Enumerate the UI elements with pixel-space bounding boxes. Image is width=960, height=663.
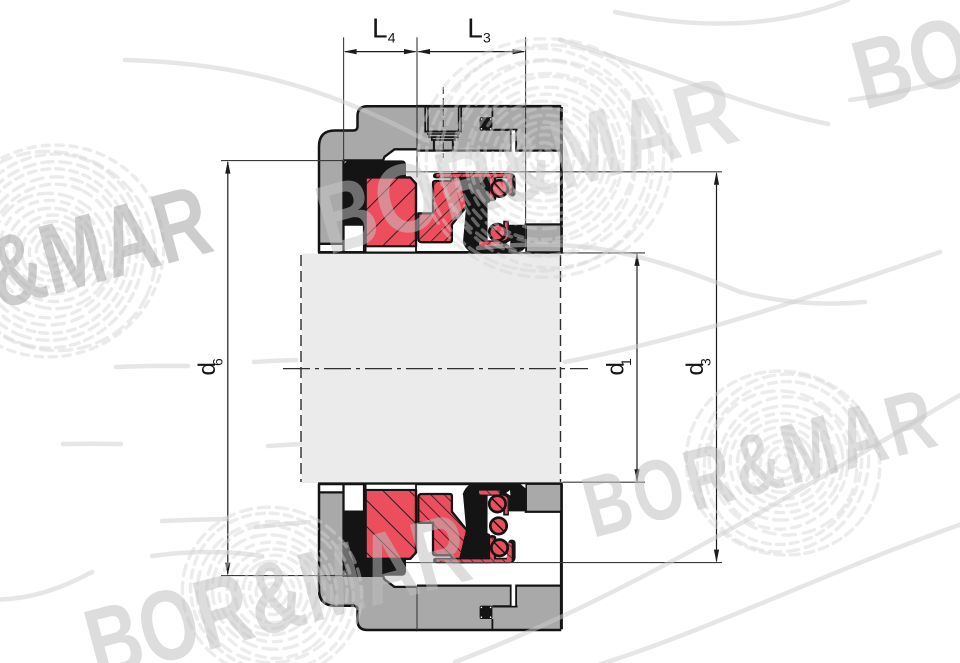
svg-text:L: L — [467, 13, 483, 44]
svg-text:3: 3 — [698, 358, 714, 366]
svg-text:6: 6 — [210, 358, 226, 366]
svg-text:4: 4 — [388, 30, 396, 46]
svg-text:3: 3 — [483, 30, 491, 46]
svg-text:1: 1 — [618, 358, 634, 366]
svg-text:L: L — [372, 13, 388, 44]
